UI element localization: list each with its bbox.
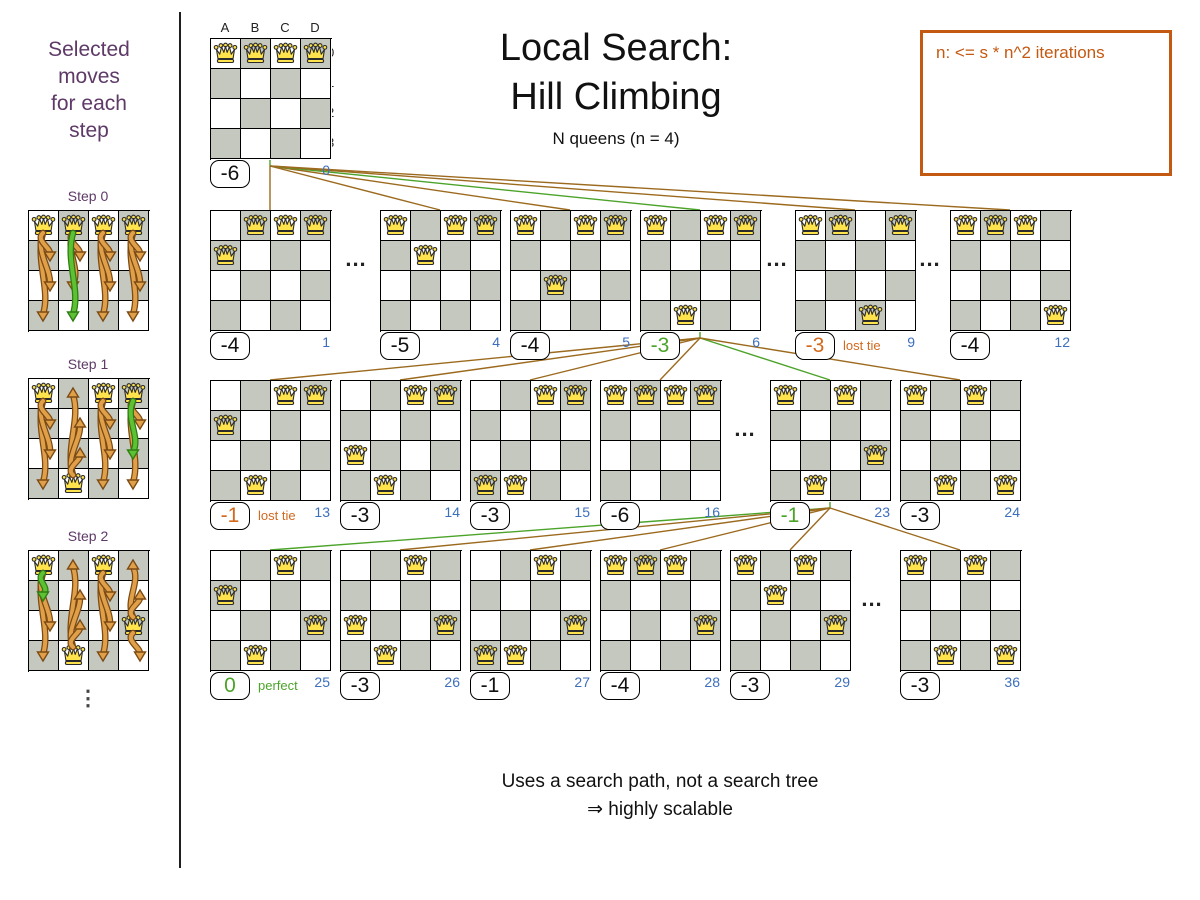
board-cell [241, 611, 271, 641]
move-arrows [28, 378, 148, 498]
queens-board [470, 380, 592, 502]
queen-icon [272, 382, 299, 409]
step-1-board [28, 378, 148, 498]
board-cell [991, 411, 1021, 441]
board-cell [531, 411, 561, 441]
queen-icon [212, 412, 239, 439]
board-cell [241, 551, 271, 581]
queen-icon [402, 382, 429, 409]
board-cell [761, 581, 791, 611]
board-cell [571, 241, 601, 271]
board-cell [561, 581, 591, 611]
board-cell [601, 271, 631, 301]
queen-icon [832, 382, 859, 409]
queen-icon [932, 642, 959, 669]
board-cell [951, 271, 981, 301]
score-tag: perfect [258, 678, 298, 693]
board-cell [601, 301, 631, 331]
board-cell [501, 441, 531, 471]
board-cell [531, 611, 561, 641]
queen-icon [792, 552, 819, 579]
board-cell [501, 551, 531, 581]
board-cell [241, 271, 271, 301]
board-cell [541, 241, 571, 271]
board-cell [901, 551, 931, 581]
board-cell [691, 471, 721, 501]
board-cell [431, 471, 461, 501]
queen-icon [602, 552, 629, 579]
board-cell [1041, 241, 1071, 271]
queen-icon [662, 382, 689, 409]
board-cell [886, 271, 916, 301]
board-cell [541, 211, 571, 241]
board-cell [241, 39, 271, 69]
queens-board [340, 380, 462, 502]
queen-icon [242, 212, 269, 239]
board-cell [771, 381, 801, 411]
board-cell [931, 641, 961, 671]
board-cell [1011, 271, 1041, 301]
board-cell [471, 301, 501, 331]
board-cell [471, 241, 501, 271]
board-cell [601, 241, 631, 271]
board-cell [731, 211, 761, 241]
board-cell [731, 611, 761, 641]
board-cell [771, 471, 801, 501]
queen-icon [692, 612, 719, 639]
board-cell [411, 241, 441, 271]
queens-board [900, 380, 1022, 502]
board-cell [641, 211, 671, 241]
queen-icon [672, 302, 699, 329]
move-index: 24 [968, 504, 1020, 520]
board-cell [661, 411, 691, 441]
queen-icon [342, 612, 369, 639]
board-cell [211, 39, 241, 69]
queen-icon [242, 472, 269, 499]
board-cell [796, 211, 826, 241]
board-cell [601, 551, 631, 581]
board-cell [211, 271, 241, 301]
board-cell [241, 69, 271, 99]
queen-icon [532, 552, 559, 579]
board-cell [691, 581, 721, 611]
queen-icon [472, 212, 499, 239]
board-cell [401, 581, 431, 611]
score-badge: -4 [600, 672, 640, 700]
board-cell [271, 271, 301, 301]
board-cell [471, 551, 501, 581]
queen-icon [962, 382, 989, 409]
board-cell [381, 241, 411, 271]
board-cell [826, 241, 856, 271]
board-cell [831, 471, 861, 501]
board-cell [271, 471, 301, 501]
board-cell [961, 411, 991, 441]
board-cell [886, 211, 916, 241]
board-cell [601, 641, 631, 671]
board-cell [601, 411, 631, 441]
board-cell [271, 129, 301, 159]
score-badge: -3 [795, 332, 835, 360]
queen-icon [572, 212, 599, 239]
board-cell [831, 441, 861, 471]
board-cell [661, 471, 691, 501]
board-cell [701, 271, 731, 301]
board-cell [301, 581, 331, 611]
move-index: 26 [408, 674, 460, 690]
board-cell [401, 441, 431, 471]
queen-icon [272, 40, 299, 67]
board-cell [471, 471, 501, 501]
board-cell [271, 611, 301, 641]
board-cell [271, 211, 301, 241]
board-cell [731, 301, 761, 331]
board-cell [431, 551, 461, 581]
board-cell [401, 641, 431, 671]
score-badge: -4 [510, 332, 550, 360]
board-cell [991, 441, 1021, 471]
queens-board [470, 550, 592, 672]
queen-icon [472, 472, 499, 499]
queen-icon [862, 442, 889, 469]
board-cell [691, 381, 721, 411]
board-cell [886, 241, 916, 271]
board-cell [381, 301, 411, 331]
queen-icon [242, 40, 269, 67]
queen-icon [632, 552, 659, 579]
queen-icon [502, 472, 529, 499]
score-badge: -5 [380, 332, 420, 360]
board-cell [961, 471, 991, 501]
board-cell [861, 381, 891, 411]
board-cell [341, 471, 371, 501]
board-cell [1011, 301, 1041, 331]
board-cell [771, 411, 801, 441]
board-cell [961, 641, 991, 671]
board-cell [301, 471, 331, 501]
board-cell [531, 471, 561, 501]
board-cell [381, 271, 411, 301]
board-cell [641, 301, 671, 331]
board-cell [1041, 271, 1071, 301]
board-cell [631, 611, 661, 641]
board-cell [661, 441, 691, 471]
board-cell [341, 611, 371, 641]
board-cell [601, 581, 631, 611]
board-cell [371, 411, 401, 441]
board-cell [241, 99, 271, 129]
board-cell [241, 241, 271, 271]
board-cell [241, 301, 271, 331]
queens-board [210, 210, 332, 332]
board-cell [731, 551, 761, 581]
board-cell [796, 271, 826, 301]
move-index: 15 [538, 504, 590, 520]
board-cell [951, 301, 981, 331]
board-cell [471, 381, 501, 411]
board-cell [561, 611, 591, 641]
board-cell [796, 301, 826, 331]
board-cell [501, 381, 531, 411]
board-cell [441, 271, 471, 301]
move-index: 23 [838, 504, 890, 520]
board-cell [991, 381, 1021, 411]
queen-icon [762, 582, 789, 609]
board-cell [271, 411, 301, 441]
board-cell [831, 381, 861, 411]
board-cell [901, 411, 931, 441]
board-cell [371, 471, 401, 501]
score-badge: -4 [950, 332, 990, 360]
move-index: 16 [668, 504, 720, 520]
board-cell [501, 471, 531, 501]
board-cell [271, 551, 301, 581]
board-cell [671, 211, 701, 241]
queen-icon [702, 212, 729, 239]
board-cell [401, 411, 431, 441]
queen-icon [562, 612, 589, 639]
queen-icon [562, 382, 589, 409]
board-cell [541, 301, 571, 331]
board-cell [931, 551, 961, 581]
board-cell [411, 271, 441, 301]
board-cell [371, 381, 401, 411]
board-cell [271, 99, 301, 129]
board-cell [951, 211, 981, 241]
queen-icon [1012, 212, 1039, 239]
board-cell [961, 581, 991, 611]
queen-icon [302, 612, 329, 639]
board-cell [601, 441, 631, 471]
queen-icon [857, 302, 884, 329]
board-cell [671, 241, 701, 271]
queen-icon [242, 642, 269, 669]
board-cell [631, 581, 661, 611]
board-cell [341, 551, 371, 581]
score-badge: -1 [770, 502, 810, 530]
board-cell [701, 211, 731, 241]
board-cell [471, 271, 501, 301]
board-cell [931, 411, 961, 441]
board-cell [411, 211, 441, 241]
board-cell [856, 301, 886, 331]
move-arrows [28, 550, 148, 670]
board-cell [501, 411, 531, 441]
board-cell [931, 581, 961, 611]
board-cell [701, 301, 731, 331]
queens-board [380, 210, 502, 332]
queen-icon [542, 272, 569, 299]
move-index: 12 [1018, 334, 1070, 350]
move-index: 6 [708, 334, 760, 350]
board-cell [691, 611, 721, 641]
board-cell [301, 241, 331, 271]
queen-icon [952, 212, 979, 239]
board-cell [241, 381, 271, 411]
board-cell [1011, 211, 1041, 241]
board-cell [961, 611, 991, 641]
board-cell [661, 381, 691, 411]
board-cell [301, 441, 331, 471]
board-cell [531, 381, 561, 411]
board-cell [371, 611, 401, 641]
board-cell [791, 641, 821, 671]
board-cell [761, 641, 791, 671]
board-cell [661, 581, 691, 611]
board-cell [371, 441, 401, 471]
score-badge: -1 [470, 672, 510, 700]
board-cell [271, 381, 301, 411]
move-index: 27 [538, 674, 590, 690]
board-cell [301, 99, 331, 129]
score-badge: -3 [900, 502, 940, 530]
board-cell [301, 411, 331, 441]
queen-icon [372, 642, 399, 669]
board-cell [991, 471, 1021, 501]
move-index: 14 [408, 504, 460, 520]
board-cell [301, 39, 331, 69]
board-cell [301, 129, 331, 159]
board-cell [821, 551, 851, 581]
board-cell [826, 271, 856, 301]
board-cell [211, 441, 241, 471]
board-cell [301, 381, 331, 411]
board-cell [731, 241, 761, 271]
queen-icon [982, 212, 1009, 239]
queen-icon [302, 382, 329, 409]
board-cell [211, 551, 241, 581]
score-badge: -6 [600, 502, 640, 530]
board-cell [241, 581, 271, 611]
board-cell [301, 69, 331, 99]
board-cell [861, 471, 891, 501]
move-index: 28 [668, 674, 720, 690]
move-index: 5 [578, 334, 630, 350]
board-cell [856, 211, 886, 241]
board-cell [431, 411, 461, 441]
board-cell [761, 551, 791, 581]
board-cell [471, 581, 501, 611]
board-cell [301, 301, 331, 331]
queen-icon [772, 382, 799, 409]
board-cell [241, 211, 271, 241]
score-badge: -4 [210, 332, 250, 360]
score-badge: -3 [470, 502, 510, 530]
board-cell [441, 301, 471, 331]
board-cell [471, 211, 501, 241]
board-cell [431, 581, 461, 611]
queens-board [340, 550, 462, 672]
score-badge: -3 [900, 672, 940, 700]
board-cell [211, 411, 241, 441]
queen-icon [342, 442, 369, 469]
board-cell [731, 271, 761, 301]
board-cell [641, 271, 671, 301]
board-cell [401, 471, 431, 501]
board-cell [271, 641, 301, 671]
board-cell [661, 551, 691, 581]
queen-icon [412, 242, 439, 269]
board-cell [531, 641, 561, 671]
board-cell [241, 411, 271, 441]
board-cell [931, 441, 961, 471]
board-cell [501, 611, 531, 641]
board-cell [981, 241, 1011, 271]
queen-icon [887, 212, 914, 239]
queen-icon [932, 472, 959, 499]
board-cell [471, 411, 501, 441]
board-cell [701, 241, 731, 271]
score-badge: -3 [730, 672, 770, 700]
queen-icon [732, 212, 759, 239]
board-cell [271, 301, 301, 331]
queen-icon [472, 642, 499, 669]
board-cell [561, 381, 591, 411]
queen-icon [602, 382, 629, 409]
board-cell [431, 381, 461, 411]
queen-icon [212, 582, 239, 609]
slide: Selected moves for each step Step 0 Step… [0, 0, 1200, 900]
board-cell [981, 211, 1011, 241]
board-cell [511, 211, 541, 241]
queens-board [600, 550, 722, 672]
board-cell [371, 641, 401, 671]
board-cell [901, 441, 931, 471]
board-cell [641, 241, 671, 271]
score-badge: -3 [640, 332, 680, 360]
queen-icon [662, 552, 689, 579]
board-cell [821, 611, 851, 641]
queen-icon [302, 40, 329, 67]
board-cell [901, 581, 931, 611]
queen-icon [382, 212, 409, 239]
board-cell [341, 381, 371, 411]
board-cell [631, 551, 661, 581]
board-cell [901, 471, 931, 501]
board-cell [1011, 241, 1041, 271]
queens-board [795, 210, 917, 332]
board-cell [661, 611, 691, 641]
board-cell [211, 211, 241, 241]
board-cell [901, 641, 931, 671]
board-cell [821, 641, 851, 671]
board-cell [471, 641, 501, 671]
queen-icon [642, 212, 669, 239]
score-badge: -1 [210, 502, 250, 530]
board-cell [561, 411, 591, 441]
board-cell [241, 441, 271, 471]
queens-board [770, 380, 892, 502]
board-cell [211, 381, 241, 411]
queen-icon [692, 382, 719, 409]
board-cell [571, 271, 601, 301]
board-cell [991, 581, 1021, 611]
board-cell [431, 441, 461, 471]
board-cell [401, 611, 431, 641]
board-cell [301, 611, 331, 641]
board-cell [981, 301, 1011, 331]
score-badge: -3 [340, 502, 380, 530]
board-cell [561, 441, 591, 471]
board-cell [471, 611, 501, 641]
step-2-board [28, 550, 148, 670]
move-index: 1 [278, 334, 330, 350]
board-cell [731, 581, 761, 611]
board-cell [1041, 301, 1071, 331]
queens-board [600, 380, 722, 502]
score-tag: lost tie [258, 508, 296, 523]
